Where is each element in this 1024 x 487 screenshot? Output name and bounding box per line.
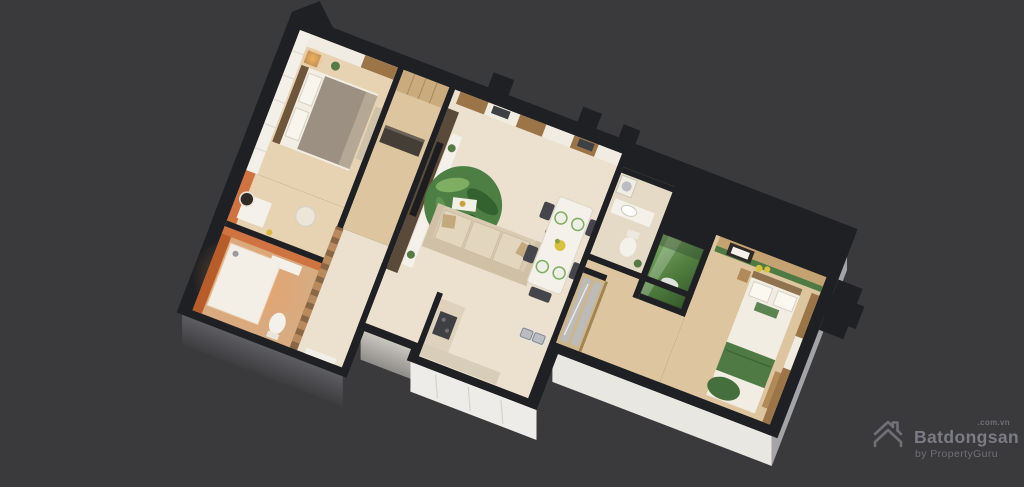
domain-text: .com.vn <box>978 418 1010 427</box>
sofa-pillow-tan-1 <box>441 214 456 229</box>
screenshot-root: Batdongsan .com.vn by PropertyGuru <box>0 0 1024 487</box>
byline-text: by PropertyGuru <box>915 448 998 460</box>
brand-text: Batdongsan <box>914 427 1019 447</box>
floorplan-render: Batdongsan .com.vn by PropertyGuru <box>0 0 1024 487</box>
